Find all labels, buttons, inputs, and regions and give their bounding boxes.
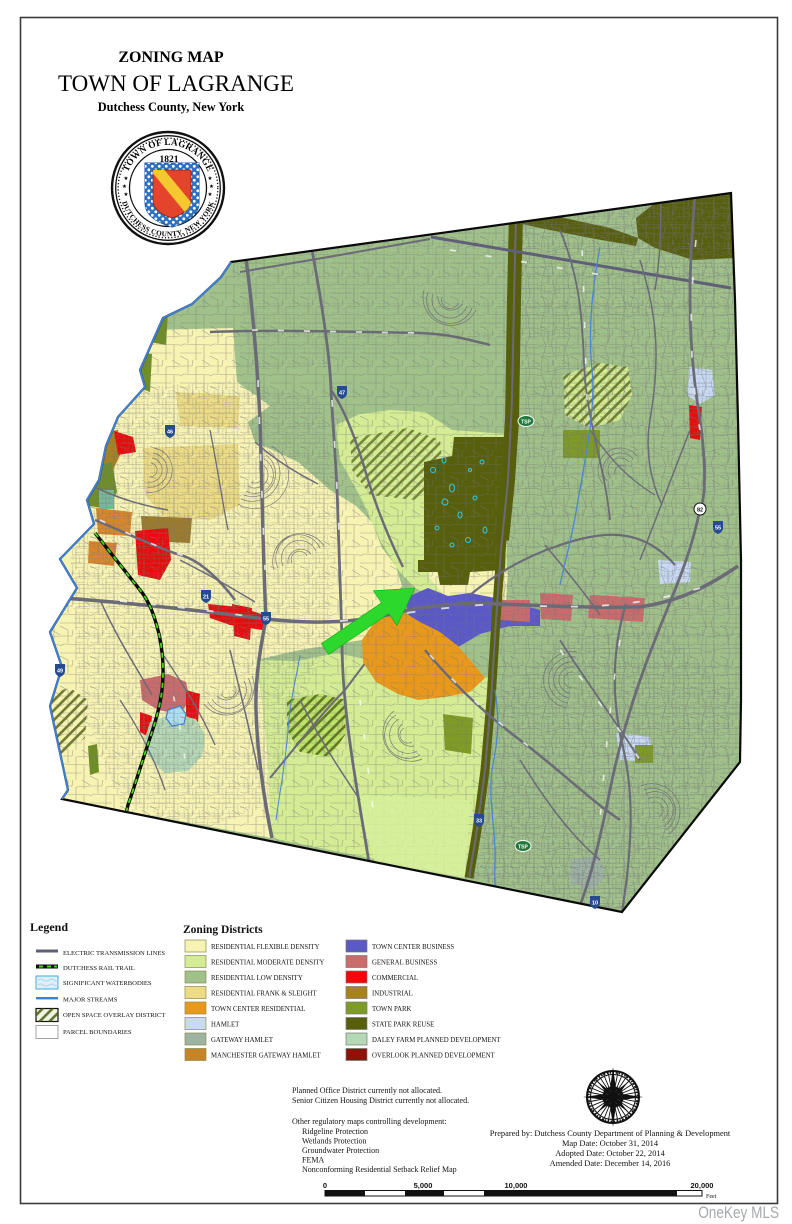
- svg-text:ELECTRIC TRANSMISSION LINES: ELECTRIC TRANSMISSION LINES: [63, 950, 165, 957]
- svg-text:55: 55: [263, 617, 269, 623]
- svg-text:0: 0: [323, 1181, 327, 1190]
- svg-text:TOWN CENTER RESIDENTIAL: TOWN CENTER RESIDENTIAL: [211, 1006, 305, 1013]
- svg-text:GENERAL BUSINESS: GENERAL BUSINESS: [372, 960, 437, 967]
- svg-text:★: ★: [124, 191, 129, 198]
- svg-text:TSP: TSP: [521, 420, 531, 426]
- svg-text:TOWN CENTER BUSINESS: TOWN CENTER BUSINESS: [372, 944, 454, 951]
- svg-text:TSP: TSP: [518, 845, 528, 851]
- svg-text:Groundwater Protection: Groundwater Protection: [302, 1146, 379, 1155]
- svg-text:Senior Citizen Housing Distric: Senior Citizen Housing District currentl…: [292, 1096, 469, 1105]
- svg-text:SIGNIFICANT WATERBODIES: SIGNIFICANT WATERBODIES: [63, 980, 152, 987]
- svg-text:★: ★: [122, 183, 127, 190]
- svg-text:Map Date: October 31, 2014: Map Date: October 31, 2014: [562, 1139, 659, 1148]
- svg-text:PARCEL BOUNDARIES: PARCEL BOUNDARIES: [63, 1029, 132, 1036]
- svg-text:RESIDENTIAL MODERATE DENSITY: RESIDENTIAL MODERATE DENSITY: [211, 960, 324, 967]
- svg-text:Legend: Legend: [30, 920, 68, 934]
- svg-text:49: 49: [57, 669, 63, 675]
- svg-text:COMMERCIAL: COMMERCIAL: [372, 975, 418, 982]
- svg-text:FEMA: FEMA: [302, 1156, 324, 1165]
- svg-text:Prepared by: Dutchess County D: Prepared by: Dutchess County Department …: [490, 1129, 731, 1138]
- svg-text:Dutchess County, New York: Dutchess County, New York: [98, 100, 245, 114]
- svg-text:RESIDENTIAL FRANK & SLEIGHT: RESIDENTIAL FRANK & SLEIGHT: [211, 991, 318, 998]
- svg-text:47: 47: [339, 391, 345, 397]
- svg-text:Nonconforming Residential Setb: Nonconforming Residential Setback Relief…: [302, 1165, 457, 1174]
- svg-text:Wetlands Protection: Wetlands Protection: [302, 1137, 366, 1146]
- svg-text:MAJOR STREAMS: MAJOR STREAMS: [63, 997, 118, 1004]
- svg-text:GATEWAY HAMLET: GATEWAY HAMLET: [211, 1037, 274, 1044]
- svg-text:10,000: 10,000: [505, 1181, 528, 1190]
- svg-text:OVERLOOK PLANNED DEVELOPMENT: OVERLOOK PLANNED DEVELOPMENT: [372, 1053, 496, 1060]
- svg-text:OPEN SPACE OVERLAY DISTRICT: OPEN SPACE OVERLAY DISTRICT: [63, 1012, 165, 1019]
- svg-text:46: 46: [167, 430, 173, 436]
- svg-text:Other regulatory maps controll: Other regulatory maps controlling develo…: [292, 1117, 447, 1126]
- svg-text:TOWN PARK: TOWN PARK: [372, 1006, 412, 1013]
- svg-text:DALEY FARM PLANNED DEVELOPMENT: DALEY FARM PLANNED DEVELOPMENT: [372, 1037, 501, 1044]
- svg-text:82: 82: [697, 508, 703, 514]
- svg-text:TOWN OF LAGRANGE: TOWN OF LAGRANGE: [58, 71, 294, 96]
- svg-text:STATE PARK REUSE: STATE PARK REUSE: [372, 1022, 434, 1029]
- svg-text:★: ★: [208, 191, 213, 198]
- svg-text:★: ★: [209, 183, 214, 190]
- svg-text:Adopted Date: October 22, 2014: Adopted Date: October 22, 2014: [555, 1149, 665, 1158]
- svg-text:★: ★: [208, 175, 213, 182]
- svg-text:33: 33: [476, 819, 482, 825]
- svg-text:ZONING MAP: ZONING MAP: [118, 49, 224, 66]
- svg-text:MANCHESTER GATEWAY HAMLET: MANCHESTER GATEWAY HAMLET: [211, 1053, 322, 1060]
- svg-text:Zoning Districts: Zoning Districts: [183, 924, 263, 936]
- svg-text:55: 55: [715, 526, 721, 532]
- svg-text:20,000: 20,000: [691, 1181, 714, 1190]
- svg-text:RESIDENTIAL LOW DENSITY: RESIDENTIAL LOW DENSITY: [211, 975, 303, 982]
- svg-text:Feet: Feet: [706, 1194, 717, 1200]
- svg-text:21: 21: [203, 595, 209, 601]
- svg-text:Ridgeline Protection: Ridgeline Protection: [302, 1127, 368, 1136]
- svg-text:5,000: 5,000: [414, 1181, 433, 1190]
- svg-text:★: ★: [124, 175, 129, 182]
- svg-text:10: 10: [592, 901, 598, 907]
- svg-text:Amended Date: December 14, 201: Amended Date: December 14, 2016: [550, 1159, 671, 1168]
- svg-text:HAMLET: HAMLET: [211, 1022, 240, 1029]
- svg-text:Planned Office District curren: Planned Office District currently not al…: [292, 1086, 442, 1095]
- svg-text:RESIDENTIAL FLEXIBLE DENSITY: RESIDENTIAL FLEXIBLE DENSITY: [211, 944, 320, 951]
- svg-text:INDUSTRIAL: INDUSTRIAL: [372, 991, 413, 998]
- svg-text:DUTCHESS RAIL TRAIL: DUTCHESS RAIL TRAIL: [63, 965, 135, 972]
